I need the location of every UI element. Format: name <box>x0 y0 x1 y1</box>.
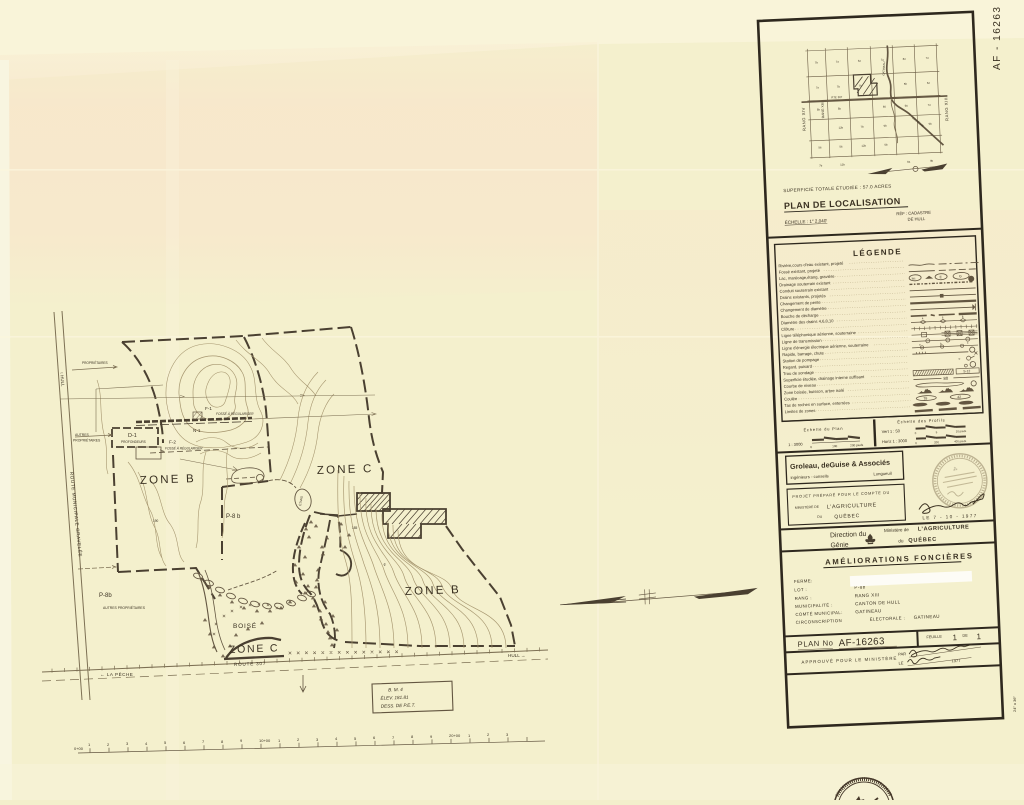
svg-text:N-1: N-1 <box>193 428 201 433</box>
svg-text:400 pieds: 400 pieds <box>954 439 967 444</box>
svg-text:ZONE C: ZONE C <box>317 463 374 477</box>
svg-text:RANG XIII: RANG XIII <box>821 102 826 118</box>
svg-text:DE HULL: DE HULL <box>908 216 927 222</box>
svg-text:← LA PÊCHE: ← LA PÊCHE <box>100 670 133 677</box>
svg-text:24″ x 36″: 24″ x 36″ <box>1012 695 1017 712</box>
svg-text:42: 42 <box>957 395 961 399</box>
svg-text:BOISÉ: BOISÉ <box>233 621 257 630</box>
svg-text:HULL →: HULL → <box>508 653 525 658</box>
svg-text:RTE 307: RTE 307 <box>831 95 843 99</box>
svg-text:LE: LE <box>898 660 903 665</box>
svg-text:ZONE C: ZONE C <box>229 642 280 656</box>
svg-text:10 pieds: 10 pieds <box>956 429 967 433</box>
svg-text:D-1: D-1 <box>128 433 137 439</box>
svg-text:1 : 3000: 1 : 3000 <box>788 441 803 447</box>
svg-text:F-2: F-2 <box>169 440 176 445</box>
svg-text:RANG XIII: RANG XIII <box>855 592 880 598</box>
svg-text:PROPRIÉTAIRES: PROPRIÉTAIRES <box>82 360 108 365</box>
svg-text:0+00: 0+00 <box>74 746 84 751</box>
svg-text:PROFONDEURS: PROFONDEURS <box>121 440 146 444</box>
svg-text:DU: DU <box>817 515 823 519</box>
svg-text:DE: DE <box>962 634 968 638</box>
svg-text:FERME:: FERME: <box>794 578 813 584</box>
svg-text:PAR: PAR <box>898 651 906 656</box>
svg-text:RANG XIV: RANG XIV <box>801 107 807 131</box>
svg-text:Clôture: Clôture <box>781 326 795 332</box>
svg-text:ZONE B: ZONE B <box>405 584 461 598</box>
svg-text:AUTRES PROPRIÉTAIRES: AUTRES PROPRIÉTAIRES <box>103 605 146 610</box>
svg-text:lac: lac <box>912 276 917 280</box>
svg-text:Longueuil: Longueuil <box>873 471 891 477</box>
svg-text:FOSSÉ À RÉGULARISER: FOSSÉ À RÉGULARISER <box>216 411 254 416</box>
svg-text:Vert 1 : 50: Vert 1 : 50 <box>882 428 901 434</box>
svg-text:190: 190 <box>153 519 159 523</box>
svg-text:12b: 12b <box>840 162 845 166</box>
svg-text:RANG :: RANG : <box>795 595 812 601</box>
svg-text:10+00: 10+00 <box>259 738 271 743</box>
svg-text:PROPRIÉTAIRES: PROPRIÉTAIRES <box>73 438 101 443</box>
svg-text:20+00: 20+00 <box>449 733 461 738</box>
svg-text:QUÉBEC: QUÉBEC <box>834 512 860 520</box>
svg-text:200 pieds: 200 pieds <box>850 443 864 448</box>
svg-text:185: 185 <box>352 526 358 530</box>
svg-text:AF - 16263: AF - 16263 <box>992 6 1003 70</box>
svg-text:FOSSÉ À RÉGULARISER: FOSSÉ À RÉGULARISER <box>165 446 203 451</box>
svg-text:AUTRES: AUTRES <box>75 433 89 437</box>
svg-text:ZONE B: ZONE B <box>140 473 196 487</box>
svg-text:GATINEAU: GATINEAU <box>881 61 886 75</box>
svg-text:FEUILLE: FEUILLE <box>926 635 942 640</box>
svg-text:Coulée: Coulée <box>784 396 798 402</box>
svg-text:12b: 12b <box>839 125 844 129</box>
svg-text:LOT :: LOT : <box>794 587 807 593</box>
svg-text:200: 200 <box>934 440 939 444</box>
svg-text:12b: 12b <box>861 143 866 147</box>
svg-text:100: 100 <box>832 444 838 448</box>
svg-text:S-12: S-12 <box>963 369 970 373</box>
svg-text:F-1: F-1 <box>205 406 212 411</box>
svg-text:ÉLEV. 181.81: ÉLEV. 181.81 <box>380 694 409 701</box>
svg-text:P-8 b: P-8 b <box>226 514 241 520</box>
svg-text:B. M. 4: B. M. 4 <box>388 687 403 693</box>
svg-text:du: du <box>898 538 904 543</box>
svg-text:RANG XIII: RANG XIII <box>943 97 949 121</box>
svg-text:P-8b: P-8b <box>99 593 112 599</box>
svg-text:PLAN No: PLAN No <box>797 638 833 649</box>
svg-text:78: 78 <box>923 397 927 401</box>
